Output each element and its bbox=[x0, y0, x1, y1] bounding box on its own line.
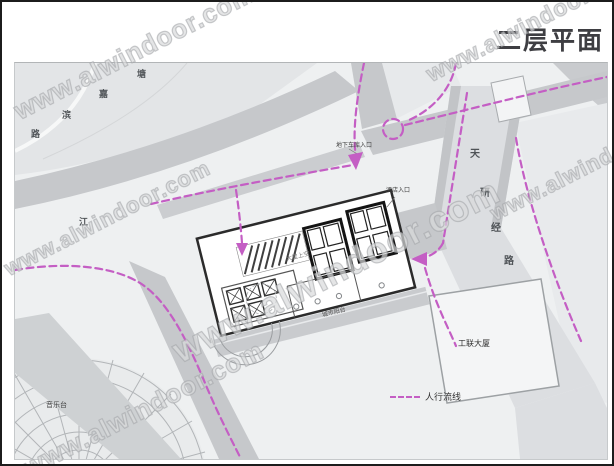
neighbor-building-label: 工联大厦 bbox=[458, 340, 490, 348]
page-title: 二层平面 bbox=[496, 21, 604, 57]
left-road-char-4: 路 bbox=[31, 130, 40, 139]
right-road-char-3: 经 bbox=[491, 224, 501, 234]
left-road-char-1: 塘 bbox=[137, 70, 146, 79]
left-road-lower-char: 江 bbox=[79, 218, 88, 227]
right-road-char-2: 研 bbox=[480, 189, 490, 199]
legend: 人行流线 bbox=[390, 390, 461, 403]
garage-entrance-label: 地下车库入口 bbox=[336, 143, 372, 149]
right-road-char-4: 路 bbox=[504, 257, 514, 267]
left-road-char-2: 嘉 bbox=[99, 90, 108, 99]
left-road-char-3: 滨 bbox=[62, 111, 71, 120]
stage-label: 音乐台 bbox=[46, 402, 67, 409]
site-plan bbox=[14, 62, 608, 460]
right-road-char-1: 天 bbox=[470, 150, 480, 160]
pedestrian-route-line-sample bbox=[390, 396, 420, 398]
hotel-entrance-label: 酒店入口 bbox=[386, 188, 410, 194]
main-building bbox=[187, 188, 433, 372]
site-plan-svg bbox=[15, 63, 607, 459]
pedestrian-route-label: 人行流线 bbox=[425, 390, 461, 403]
plan-page: 二层平面 bbox=[0, 0, 614, 466]
